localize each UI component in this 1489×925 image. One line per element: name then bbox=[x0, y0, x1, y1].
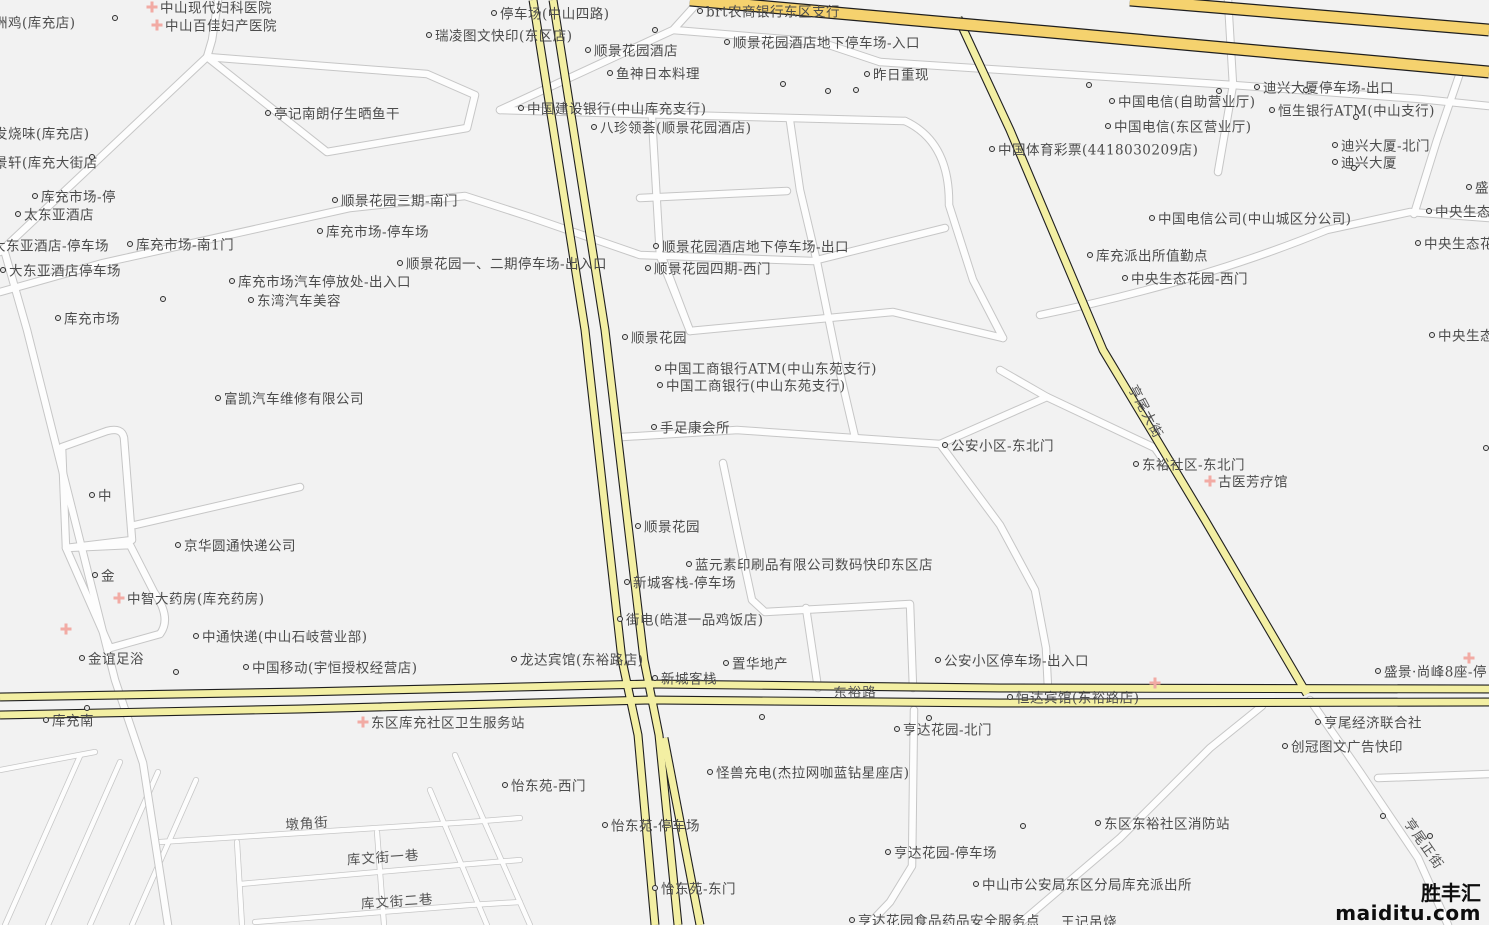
poi-label[interactable]: 亨达花园-停车场 bbox=[894, 842, 997, 862]
poi-dot-marker[interactable] bbox=[864, 71, 870, 77]
poi-label[interactable]: 景轩(库充大街店 bbox=[0, 152, 98, 172]
poi-label[interactable]: 亨达花园-北门 bbox=[903, 719, 992, 739]
poi-label[interactable]: 顺景花园三期-南门 bbox=[341, 190, 458, 210]
poi-dot-marker[interactable] bbox=[1007, 694, 1013, 700]
poi-label[interactable]: 顺景花园酒店 bbox=[594, 40, 678, 60]
poi-dot-marker[interactable] bbox=[265, 110, 271, 116]
poi-label[interactable]: 中国电信(东区营业厅) bbox=[1114, 116, 1252, 136]
poi-dot-marker[interactable] bbox=[1483, 445, 1489, 451]
poi-label[interactable]: 亨达花园食品药品安全服务点 bbox=[858, 910, 1040, 925]
poi-dot-marker[interactable] bbox=[607, 70, 613, 76]
poi-dot-marker[interactable] bbox=[1109, 98, 1115, 104]
poi-dot-marker[interactable] bbox=[1332, 159, 1338, 165]
poi-label[interactable]: 中通快递(中山石岐营业部) bbox=[202, 626, 368, 646]
poi-dot-marker[interactable] bbox=[92, 572, 98, 578]
poi-label[interactable]: 八珍领荟(顺景花园酒店) bbox=[600, 117, 752, 137]
poi-dot-marker[interactable] bbox=[518, 105, 524, 111]
poi-dot-marker[interactable] bbox=[853, 87, 859, 93]
poi-dot-marker[interactable] bbox=[1122, 275, 1128, 281]
poi-dot-marker[interactable] bbox=[229, 278, 235, 284]
poi-cross-icon[interactable] bbox=[1150, 678, 1161, 689]
poi-label[interactable]: 中国电信公司(中山城区分公司) bbox=[1158, 208, 1352, 228]
poi-dot-marker[interactable] bbox=[43, 717, 49, 723]
road-name-label: 亨尾正街 bbox=[1400, 814, 1450, 873]
poi-dot-marker[interactable] bbox=[193, 633, 199, 639]
poi-dot-marker[interactable] bbox=[1254, 84, 1260, 90]
poi-label[interactable]: 瑞凌图文快印(东区店) bbox=[435, 25, 573, 45]
poi-label[interactable]: 大东亚酒店停车场 bbox=[9, 260, 121, 280]
poi-dot-marker[interactable] bbox=[55, 315, 61, 321]
poi-dot-marker[interactable] bbox=[635, 523, 641, 529]
poi-label[interactable]: 顺景花园酒店地下停车场-入口 bbox=[733, 32, 920, 52]
poi-label[interactable]: 顺景花园 bbox=[631, 327, 687, 347]
poi-dot-marker[interactable] bbox=[1315, 719, 1321, 725]
poi-dot-marker[interactable] bbox=[759, 714, 765, 720]
poi-dot-marker[interactable] bbox=[707, 769, 713, 775]
poi-label[interactable]: 顺景花园一、二期停车场-出入口 bbox=[406, 253, 607, 273]
poi-dot-marker[interactable] bbox=[15, 211, 21, 217]
poi-dot-marker[interactable] bbox=[885, 849, 891, 855]
poi-dot-marker[interactable] bbox=[1216, 88, 1222, 94]
poi-dot-marker[interactable] bbox=[624, 579, 630, 585]
poi-dot-marker[interactable] bbox=[724, 39, 730, 45]
poi-label[interactable]: 亭记南朗仔生晒鱼干 bbox=[274, 103, 400, 123]
poi-dot-marker[interactable] bbox=[697, 8, 703, 14]
poi-label[interactable]: 新城客栈 bbox=[661, 668, 717, 688]
poi-dot-marker[interactable] bbox=[1105, 123, 1111, 129]
poi-label[interactable]: 大东亚酒店-停车场 bbox=[0, 235, 109, 255]
poi-dot-marker[interactable] bbox=[1427, 833, 1433, 839]
poi-label[interactable]: 中山百佳妇产医院 bbox=[165, 15, 277, 35]
poi-label[interactable]: 金 bbox=[101, 565, 115, 585]
poi-dot-marker[interactable] bbox=[160, 296, 166, 302]
poi-label[interactable]: 发烧味(库充店) bbox=[0, 123, 90, 143]
watermark-site: maiditu.com bbox=[1335, 903, 1481, 923]
poi-dot-marker[interactable] bbox=[1086, 82, 1092, 88]
poi-dot-marker[interactable] bbox=[585, 47, 591, 53]
poi-label[interactable]: 金谊足浴 bbox=[88, 648, 144, 668]
poi-label[interactable]: 中智大药房(库充药房) bbox=[127, 588, 265, 608]
poi-cross-icon[interactable] bbox=[61, 624, 72, 635]
poi-dot-marker[interactable] bbox=[1426, 208, 1432, 214]
poi-label[interactable]: 盛景 bbox=[1475, 177, 1489, 197]
poi-label[interactable]: brt农商银行东区支行 bbox=[706, 1, 840, 21]
poi-label[interactable]: 中 bbox=[98, 485, 112, 505]
poi-dot-marker[interactable] bbox=[653, 243, 659, 249]
poi-dot-marker[interactable] bbox=[89, 154, 95, 160]
poi-dot-marker[interactable] bbox=[1332, 142, 1338, 148]
poi-label[interactable]: 迪兴大厦停车场-出口 bbox=[1263, 77, 1394, 97]
poi-dot-marker[interactable] bbox=[173, 669, 179, 675]
poi-dot-marker[interactable] bbox=[0, 267, 6, 273]
poi-label[interactable]: 古医芳疗馆 bbox=[1218, 471, 1288, 491]
poi-label[interactable]: 京华圆通快递公司 bbox=[184, 535, 296, 555]
poi-label[interactable]: 停车场(中山四路) bbox=[500, 3, 610, 23]
poi-label[interactable]: 库充市场-停车场 bbox=[326, 221, 429, 241]
poi-dot-marker[interactable] bbox=[926, 715, 932, 721]
poi-label[interactable]: 中央生态花园 bbox=[1424, 233, 1489, 253]
poi-label[interactable]: 顺景花园 bbox=[644, 516, 700, 536]
poi-dot-marker[interactable] bbox=[686, 561, 692, 567]
poi-dot-marker[interactable] bbox=[1303, 87, 1309, 93]
poi-label[interactable]: 盛景·尚峰8座-停 bbox=[1384, 661, 1487, 681]
poi-label[interactable]: 公安小区-东北门 bbox=[951, 435, 1054, 455]
poi-cross-icon[interactable] bbox=[114, 593, 125, 604]
poi-cross-icon[interactable] bbox=[1464, 653, 1475, 664]
poi-label[interactable]: 蓝元素印刷品有限公司数码快印东区店 bbox=[695, 554, 933, 574]
poi-dot-marker[interactable] bbox=[622, 334, 628, 340]
poi-label[interactable]: 置华地产 bbox=[732, 653, 788, 673]
poi-label[interactable]: 太东亚酒店 bbox=[24, 204, 94, 224]
poi-label[interactable]: 库充市场-停 bbox=[41, 186, 116, 206]
poi-dot-marker[interactable] bbox=[1380, 813, 1386, 819]
poi-label[interactable]: 洲鸡(库充店) bbox=[0, 12, 76, 32]
poi-label[interactable]: 中国体育彩票(4418030209店) bbox=[998, 139, 1198, 159]
poi-label[interactable]: 中央生态花园-西门 bbox=[1131, 268, 1248, 288]
poi-label[interactable]: 库充市场-南1门 bbox=[136, 234, 234, 254]
poi-dot-marker[interactable] bbox=[215, 395, 221, 401]
poi-cross-icon[interactable] bbox=[1205, 476, 1216, 487]
poi-label[interactable]: 库充派出所值勤点 bbox=[1096, 245, 1208, 265]
poi-dot-marker[interactable] bbox=[426, 32, 432, 38]
poi-label[interactable]: 亨尾经济联合社 bbox=[1324, 712, 1422, 732]
poi-label[interactable]: 怡东苑-停车场 bbox=[611, 815, 700, 835]
poi-cross-icon[interactable] bbox=[358, 717, 369, 728]
poi-label[interactable]: 中国移动(宇恒授权经营店) bbox=[252, 657, 418, 677]
poi-label[interactable]: 中国工商银行(中山东苑支行) bbox=[666, 375, 846, 395]
poi-dot-marker[interactable] bbox=[655, 365, 661, 371]
poi-label[interactable]: 中国电信(自助营业厅) bbox=[1118, 91, 1256, 111]
poi-dot-marker[interactable] bbox=[894, 726, 900, 732]
poi-dot-marker[interactable] bbox=[602, 822, 608, 828]
poi-label[interactable]: 东区库充社区卫生服务站 bbox=[371, 712, 525, 732]
poi-label[interactable]: 新城客栈-停车场 bbox=[633, 572, 736, 592]
poi-dot-marker[interactable] bbox=[1133, 461, 1139, 467]
poi-dot-marker[interactable] bbox=[591, 124, 597, 130]
poi-dot-marker[interactable] bbox=[651, 424, 657, 430]
road-name-label: 库文街一巷 bbox=[346, 843, 420, 868]
poi-dot-marker[interactable] bbox=[1149, 215, 1155, 221]
poi-label[interactable]: 手足康会所 bbox=[660, 417, 730, 437]
poi-dot-marker[interactable] bbox=[652, 27, 658, 33]
road-name-label: 东裕路 bbox=[833, 681, 877, 702]
poi-label[interactable]: 中山市公安局东区分局库充派出所 bbox=[982, 874, 1192, 894]
poi-dot-marker[interactable] bbox=[397, 260, 403, 266]
poi-cross-icon[interactable] bbox=[152, 20, 163, 31]
poi-dot-marker[interactable] bbox=[1466, 184, 1472, 190]
poi-dot-marker[interactable] bbox=[1351, 165, 1357, 171]
poi-label[interactable]: 创冠图文广告快印 bbox=[1291, 736, 1403, 756]
poi-dot-marker[interactable] bbox=[989, 146, 995, 152]
poi-label[interactable]: 中央生态 bbox=[1435, 201, 1489, 221]
poi-dot-marker[interactable] bbox=[617, 616, 623, 622]
poi-label[interactable]: 恒达宾馆(东裕路店) bbox=[1016, 687, 1140, 707]
poi-dot-marker[interactable] bbox=[248, 297, 254, 303]
poi-label[interactable]: 怡东苑-西门 bbox=[511, 775, 586, 795]
poi-dot-marker[interactable] bbox=[84, 705, 90, 711]
poi-label[interactable]: 中央生态 bbox=[1438, 325, 1489, 345]
poi-label[interactable]: 龙达宾馆(东裕路店) bbox=[520, 649, 644, 669]
poi-dot-marker[interactable] bbox=[1020, 823, 1026, 829]
poi-label[interactable]: 街电(皓湛一品鸡饭店) bbox=[626, 609, 764, 629]
poi-dot-marker[interactable] bbox=[1375, 668, 1381, 674]
poi-dot-marker[interactable] bbox=[1269, 107, 1275, 113]
poi-label[interactable]: 库充市场 bbox=[64, 308, 120, 328]
poi-label[interactable]: 东区东裕社区消防站 bbox=[1104, 813, 1230, 833]
road-name-label: 库文街二巷 bbox=[360, 887, 434, 912]
map-viewport[interactable]: 洲鸡(库充店)中山现代妇科医院中山百佳妇产医院停车场(中山四路)瑞凌图文快印(东… bbox=[0, 0, 1489, 925]
poi-label[interactable]: 昨日重现 bbox=[873, 64, 929, 84]
poi-dot-marker[interactable] bbox=[652, 885, 658, 891]
poi-dot-marker[interactable] bbox=[657, 382, 663, 388]
poi-dot-marker[interactable] bbox=[89, 492, 95, 498]
poi-label[interactable]: 库充南 bbox=[52, 710, 94, 730]
poi-label[interactable]: 鱼神日本料理 bbox=[616, 63, 700, 83]
poi-dot-marker[interactable] bbox=[652, 675, 658, 681]
poi-dot-marker[interactable] bbox=[32, 193, 38, 199]
poi-label[interactable]: 中国建设银行(中山库充支行) bbox=[527, 98, 707, 118]
poi-cross-icon[interactable] bbox=[147, 2, 158, 13]
poi-dot-marker[interactable] bbox=[1095, 820, 1101, 826]
poi-dot-marker[interactable] bbox=[243, 664, 249, 670]
poi-dot-marker[interactable] bbox=[175, 542, 181, 548]
poi-dot-marker[interactable] bbox=[1415, 240, 1421, 246]
poi-dot-marker[interactable] bbox=[127, 241, 133, 247]
poi-dot-marker[interactable] bbox=[1282, 743, 1288, 749]
poi-dot-marker[interactable] bbox=[973, 881, 979, 887]
poi-dot-marker[interactable] bbox=[332, 197, 338, 203]
poi-layer: 洲鸡(库充店)中山现代妇科医院中山百佳妇产医院停车场(中山四路)瑞凌图文快印(东… bbox=[0, 0, 1489, 925]
poi-label[interactable]: 顺景花园四期-西门 bbox=[654, 258, 771, 278]
poi-label[interactable]: 王记吊烧 bbox=[1061, 911, 1117, 925]
poi-dot-marker[interactable] bbox=[780, 81, 786, 87]
poi-dot-marker[interactable] bbox=[317, 228, 323, 234]
road-name-label: 亨尾大街 bbox=[1125, 381, 1170, 442]
watermark-brand: 胜丰汇 bbox=[1335, 883, 1481, 903]
poi-label[interactable]: 库充市场汽车停放处-出入口 bbox=[238, 271, 411, 291]
road-name-label: 墩角街 bbox=[285, 811, 330, 834]
poi-dot-marker[interactable] bbox=[1353, 114, 1359, 120]
poi-dot-marker[interactable] bbox=[491, 10, 497, 16]
poi-label[interactable]: 怡东苑-东门 bbox=[661, 878, 736, 898]
poi-dot-marker[interactable] bbox=[1087, 252, 1093, 258]
poi-dot-marker[interactable] bbox=[723, 660, 729, 666]
poi-dot-marker[interactable] bbox=[942, 442, 948, 448]
poi-dot-marker[interactable] bbox=[511, 656, 517, 662]
poi-dot-marker[interactable] bbox=[849, 917, 855, 923]
poi-label[interactable]: 富凯汽车维修有限公司 bbox=[224, 388, 364, 408]
poi-label[interactable]: 迪兴大厦 bbox=[1341, 152, 1397, 172]
poi-dot-marker[interactable] bbox=[502, 782, 508, 788]
poi-label[interactable]: 顺景花园酒店地下停车场-出口 bbox=[662, 236, 849, 256]
poi-label[interactable]: 公安小区停车场-出入口 bbox=[944, 650, 1089, 670]
poi-dot-marker[interactable] bbox=[645, 265, 651, 271]
poi-label[interactable]: 东湾汽车美容 bbox=[257, 290, 341, 310]
poi-dot-marker[interactable] bbox=[112, 15, 118, 21]
poi-dot-marker[interactable] bbox=[79, 655, 85, 661]
poi-dot-marker[interactable] bbox=[1429, 332, 1435, 338]
poi-dot-marker[interactable] bbox=[935, 657, 941, 663]
map-watermark: 胜丰汇 maiditu.com bbox=[1335, 883, 1481, 923]
poi-label[interactable]: 怪兽充电(杰拉网咖蓝钻星座店) bbox=[716, 762, 910, 782]
poi-dot-marker[interactable] bbox=[825, 88, 831, 94]
